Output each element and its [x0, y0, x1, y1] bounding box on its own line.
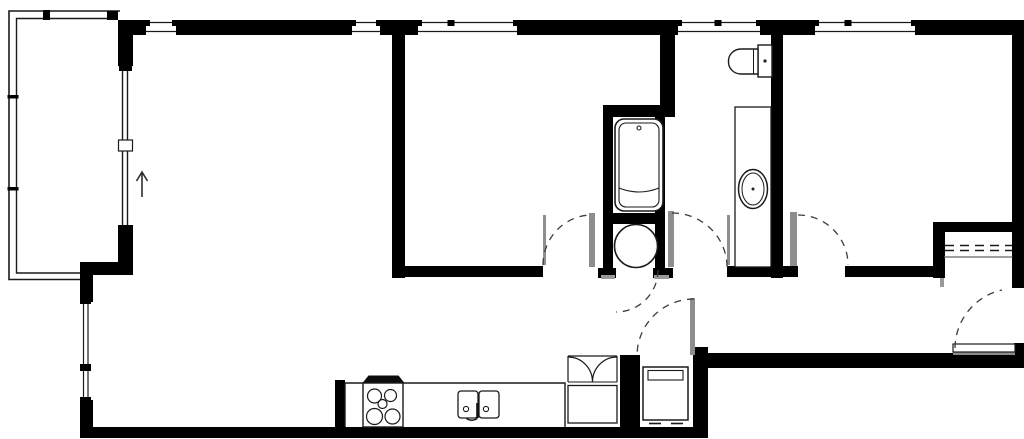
wall [118, 225, 133, 263]
window-left-cap [80, 300, 91, 304]
window-wc-mullion [715, 20, 722, 26]
bathtub-outer [615, 119, 663, 211]
window-bedroom1-cap [815, 20, 819, 26]
door-swing-wc [672, 213, 727, 267]
pantry-cabinet [568, 386, 617, 424]
kitchen-sink-faucet-spout [467, 419, 478, 421]
wall [80, 400, 93, 438]
window-bedroom2-mullion [448, 20, 455, 26]
kitchen-sink-basin [458, 391, 478, 418]
wall [620, 355, 640, 438]
door-swing-bedroom1 [798, 215, 848, 265]
door-swing-laundry [637, 299, 694, 356]
door-leaf-bedroom1 [790, 212, 797, 266]
window-bedroom1-mullion [845, 20, 852, 26]
balcony-rail-tick [8, 187, 19, 191]
wall [933, 222, 945, 278]
wall [693, 347, 708, 438]
wall [660, 20, 675, 117]
sliding-door-handle [119, 140, 133, 151]
window-bedroom2-cap [513, 20, 517, 26]
washing-machine [643, 367, 688, 420]
window-living-2-cap [352, 20, 356, 26]
toilet-flush-button [763, 59, 766, 62]
floor-plan [0, 0, 1024, 439]
wall [708, 353, 1024, 368]
wall [335, 380, 345, 428]
door-swing-heater-closet [616, 270, 658, 312]
wall [517, 20, 678, 35]
wall [915, 20, 1024, 35]
wall [392, 20, 405, 278]
wall [845, 266, 940, 277]
water-heater [615, 225, 658, 268]
bifold-door [568, 357, 593, 382]
balcony-rail-tick [43, 10, 50, 20]
wall [760, 20, 815, 35]
window-left-glass [80, 302, 93, 400]
door-leaf-bedroom2 [589, 213, 595, 267]
balcony-rail-bracket [107, 11, 118, 20]
door-jamb [543, 215, 546, 265]
door-swing-entry [955, 290, 1002, 348]
door-jamb [940, 278, 944, 287]
wall [392, 266, 543, 277]
sliding-door-cap [119, 64, 132, 71]
balcony-inner-rail [17, 19, 119, 274]
wall [176, 20, 352, 35]
window-left-cap [80, 397, 91, 401]
wall [80, 427, 708, 438]
wall [118, 20, 133, 66]
door-leaf-wc [668, 211, 674, 267]
window-wc-cap [678, 20, 682, 26]
window-living-1-cap [172, 20, 176, 26]
door-swing-bedroom2 [543, 215, 592, 265]
window-living-2-cap [376, 20, 380, 26]
wall [603, 105, 613, 217]
window-wc-cap [756, 20, 760, 26]
entry-door-leaf [953, 344, 1015, 352]
door-jamb [654, 275, 669, 279]
door-jamb [727, 215, 730, 265]
wall [1012, 20, 1024, 288]
wall [933, 222, 1015, 232]
wall [771, 20, 783, 278]
bifold-door [593, 357, 618, 382]
wall [80, 262, 133, 275]
window-left-tick [80, 364, 91, 371]
floor-plan-svg [0, 0, 1024, 439]
window-bedroom1-cap [911, 20, 915, 26]
range-hood [363, 376, 405, 384]
window-living-1-cap [146, 20, 150, 26]
stove [363, 383, 403, 427]
entrance-arrow [137, 172, 148, 197]
door-jamb [601, 275, 615, 279]
wall [603, 222, 613, 269]
door-leaf-laundry [690, 298, 695, 355]
kitchen-sink-basin [479, 391, 499, 418]
balcony-rail-tick [8, 95, 19, 99]
vanity-sink-drain [752, 188, 755, 191]
vanity-counter [735, 107, 771, 267]
balcony-outer-rail [9, 11, 120, 280]
window-bedroom2-cap [418, 20, 422, 26]
